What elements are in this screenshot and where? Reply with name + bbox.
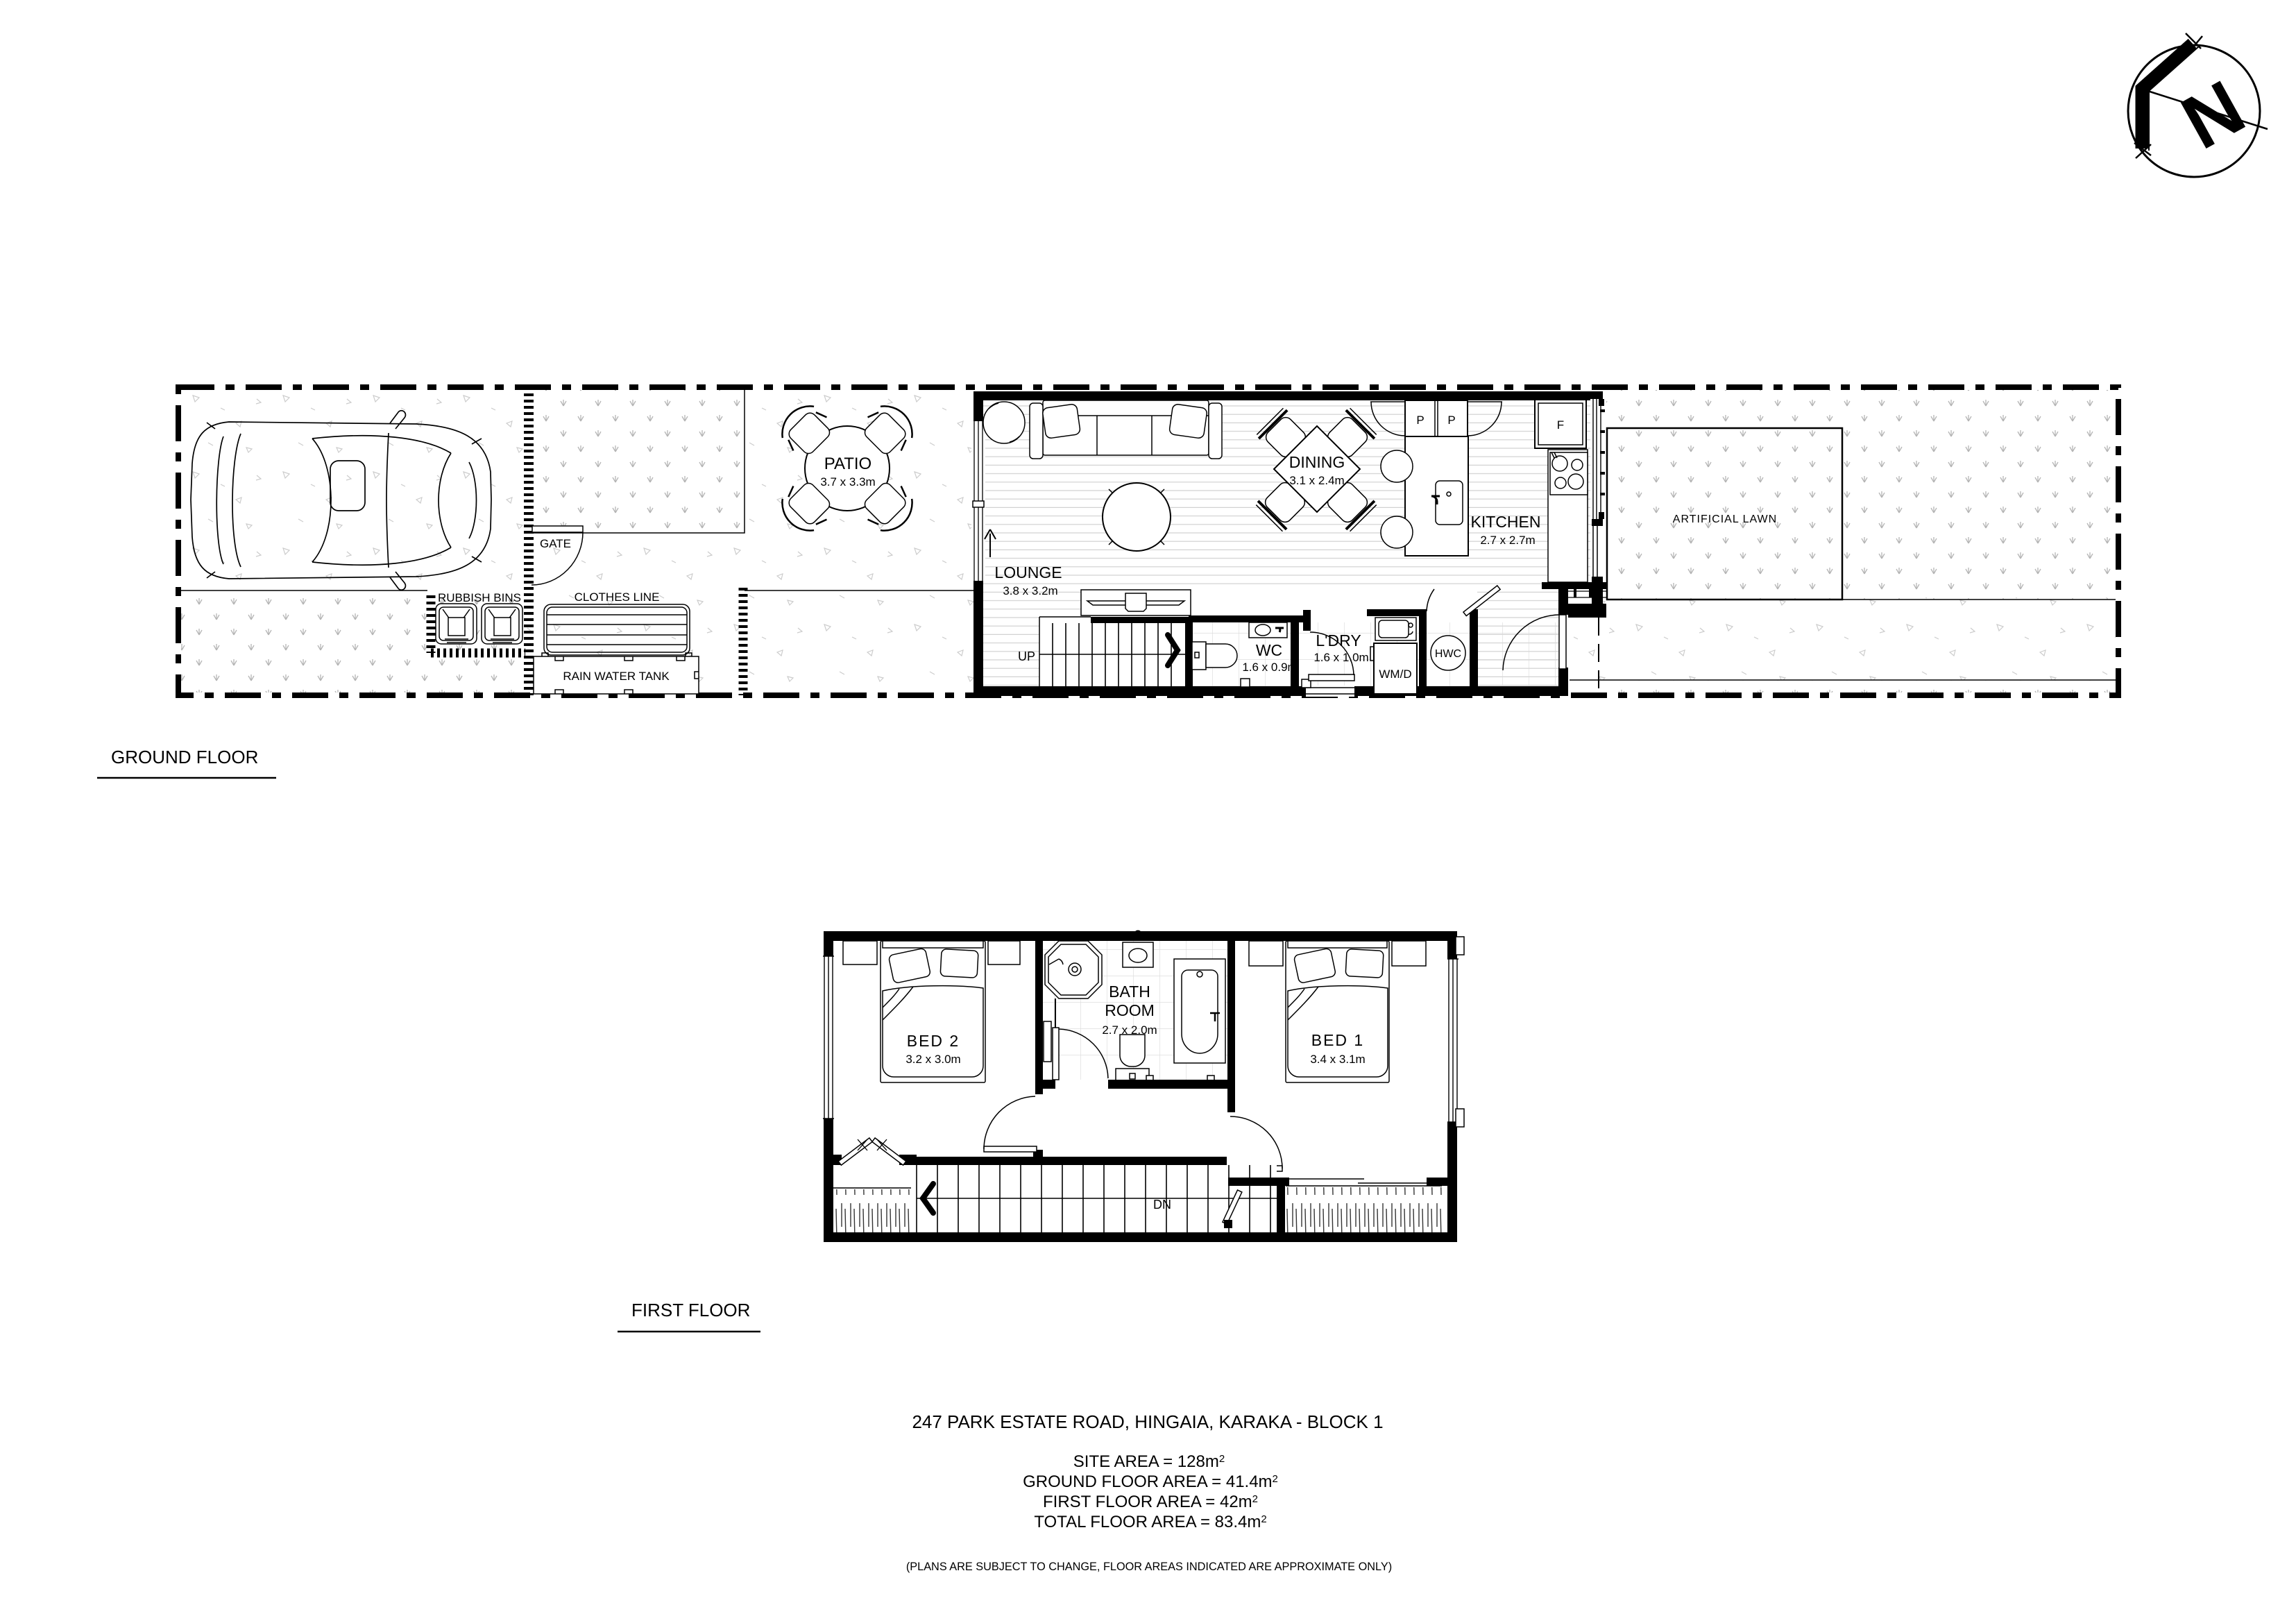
svg-text:P: P (1416, 414, 1424, 427)
svg-text:GROUND FLOOR AREA = 41.4m2: GROUND FLOOR AREA = 41.4m2 (1023, 1472, 1278, 1491)
svg-text:SITE AREA = 128m2: SITE AREA = 128m2 (1073, 1452, 1225, 1471)
svg-text:247 PARK ESTATE ROAD, HINGAIA,: 247 PARK ESTATE ROAD, HINGAIA, KARAKA - … (912, 1411, 1383, 1432)
svg-text:3.1 x 2.4m: 3.1 x 2.4m (1289, 474, 1344, 487)
svg-text:CLOTHES LINE: CLOTHES LINE (575, 590, 660, 604)
svg-text:GATE: GATE (540, 537, 571, 550)
svg-text:FIRST FLOOR AREA = 42m2: FIRST FLOOR AREA = 42m2 (1043, 1493, 1258, 1511)
svg-text:FIRST FLOOR: FIRST FLOOR (631, 1300, 750, 1320)
svg-text:1.6 x 1.0m: 1.6 x 1.0m (1313, 651, 1368, 664)
svg-text:1.6 x 0.9m: 1.6 x 0.9m (1242, 661, 1297, 674)
svg-text:LOUNGE: LOUNGE (994, 563, 1062, 581)
svg-text:GROUND FLOOR: GROUND FLOOR (111, 747, 258, 767)
svg-text:KITCHEN: KITCHEN (1471, 513, 1541, 531)
svg-text:2.7 x 2.7m: 2.7 x 2.7m (1480, 534, 1535, 547)
svg-text:BED 2: BED 2 (907, 1032, 960, 1050)
svg-text:BED 1: BED 1 (1311, 1031, 1364, 1049)
svg-text:BATH: BATH (1109, 983, 1150, 1001)
svg-text:3.7 x 3.3m: 3.7 x 3.3m (820, 475, 875, 488)
svg-text:3.4 x 3.1m: 3.4 x 3.1m (1310, 1053, 1365, 1066)
svg-text:3.2 x 3.0m: 3.2 x 3.0m (905, 1053, 960, 1066)
svg-text:RAIN WATER TANK: RAIN WATER TANK (563, 670, 670, 683)
svg-text:(PLANS ARE SUBJECT TO CHANGE,: (PLANS ARE SUBJECT TO CHANGE, FLOOR AREA… (906, 1561, 1392, 1573)
svg-text:RUBBISH BINS: RUBBISH BINS (438, 591, 521, 604)
svg-text:3.8 x 3.2m: 3.8 x 3.2m (1003, 584, 1057, 597)
svg-text:TOTAL FLOOR AREA = 83.4m2: TOTAL FLOOR AREA = 83.4m2 (1034, 1513, 1266, 1531)
svg-text:ROOM: ROOM (1105, 1001, 1155, 1019)
svg-text:DN: DN (1153, 1198, 1171, 1212)
svg-text:ARTIFICIAL LAWN: ARTIFICIAL LAWN (1673, 513, 1777, 525)
svg-text:WC: WC (1256, 641, 1282, 659)
svg-text:PATIO: PATIO (824, 454, 871, 473)
svg-text:DINING: DINING (1289, 453, 1345, 471)
svg-text:HWC: HWC (1435, 648, 1461, 660)
svg-text:WM/D: WM/D (1379, 668, 1411, 681)
svg-text:F: F (1557, 418, 1564, 432)
svg-text:P: P (1447, 414, 1455, 427)
svg-text:UP: UP (1018, 649, 1035, 663)
svg-text:L'DRY: L'DRY (1316, 631, 1361, 649)
svg-text:2.7 x 2.0m: 2.7 x 2.0m (1102, 1023, 1157, 1037)
